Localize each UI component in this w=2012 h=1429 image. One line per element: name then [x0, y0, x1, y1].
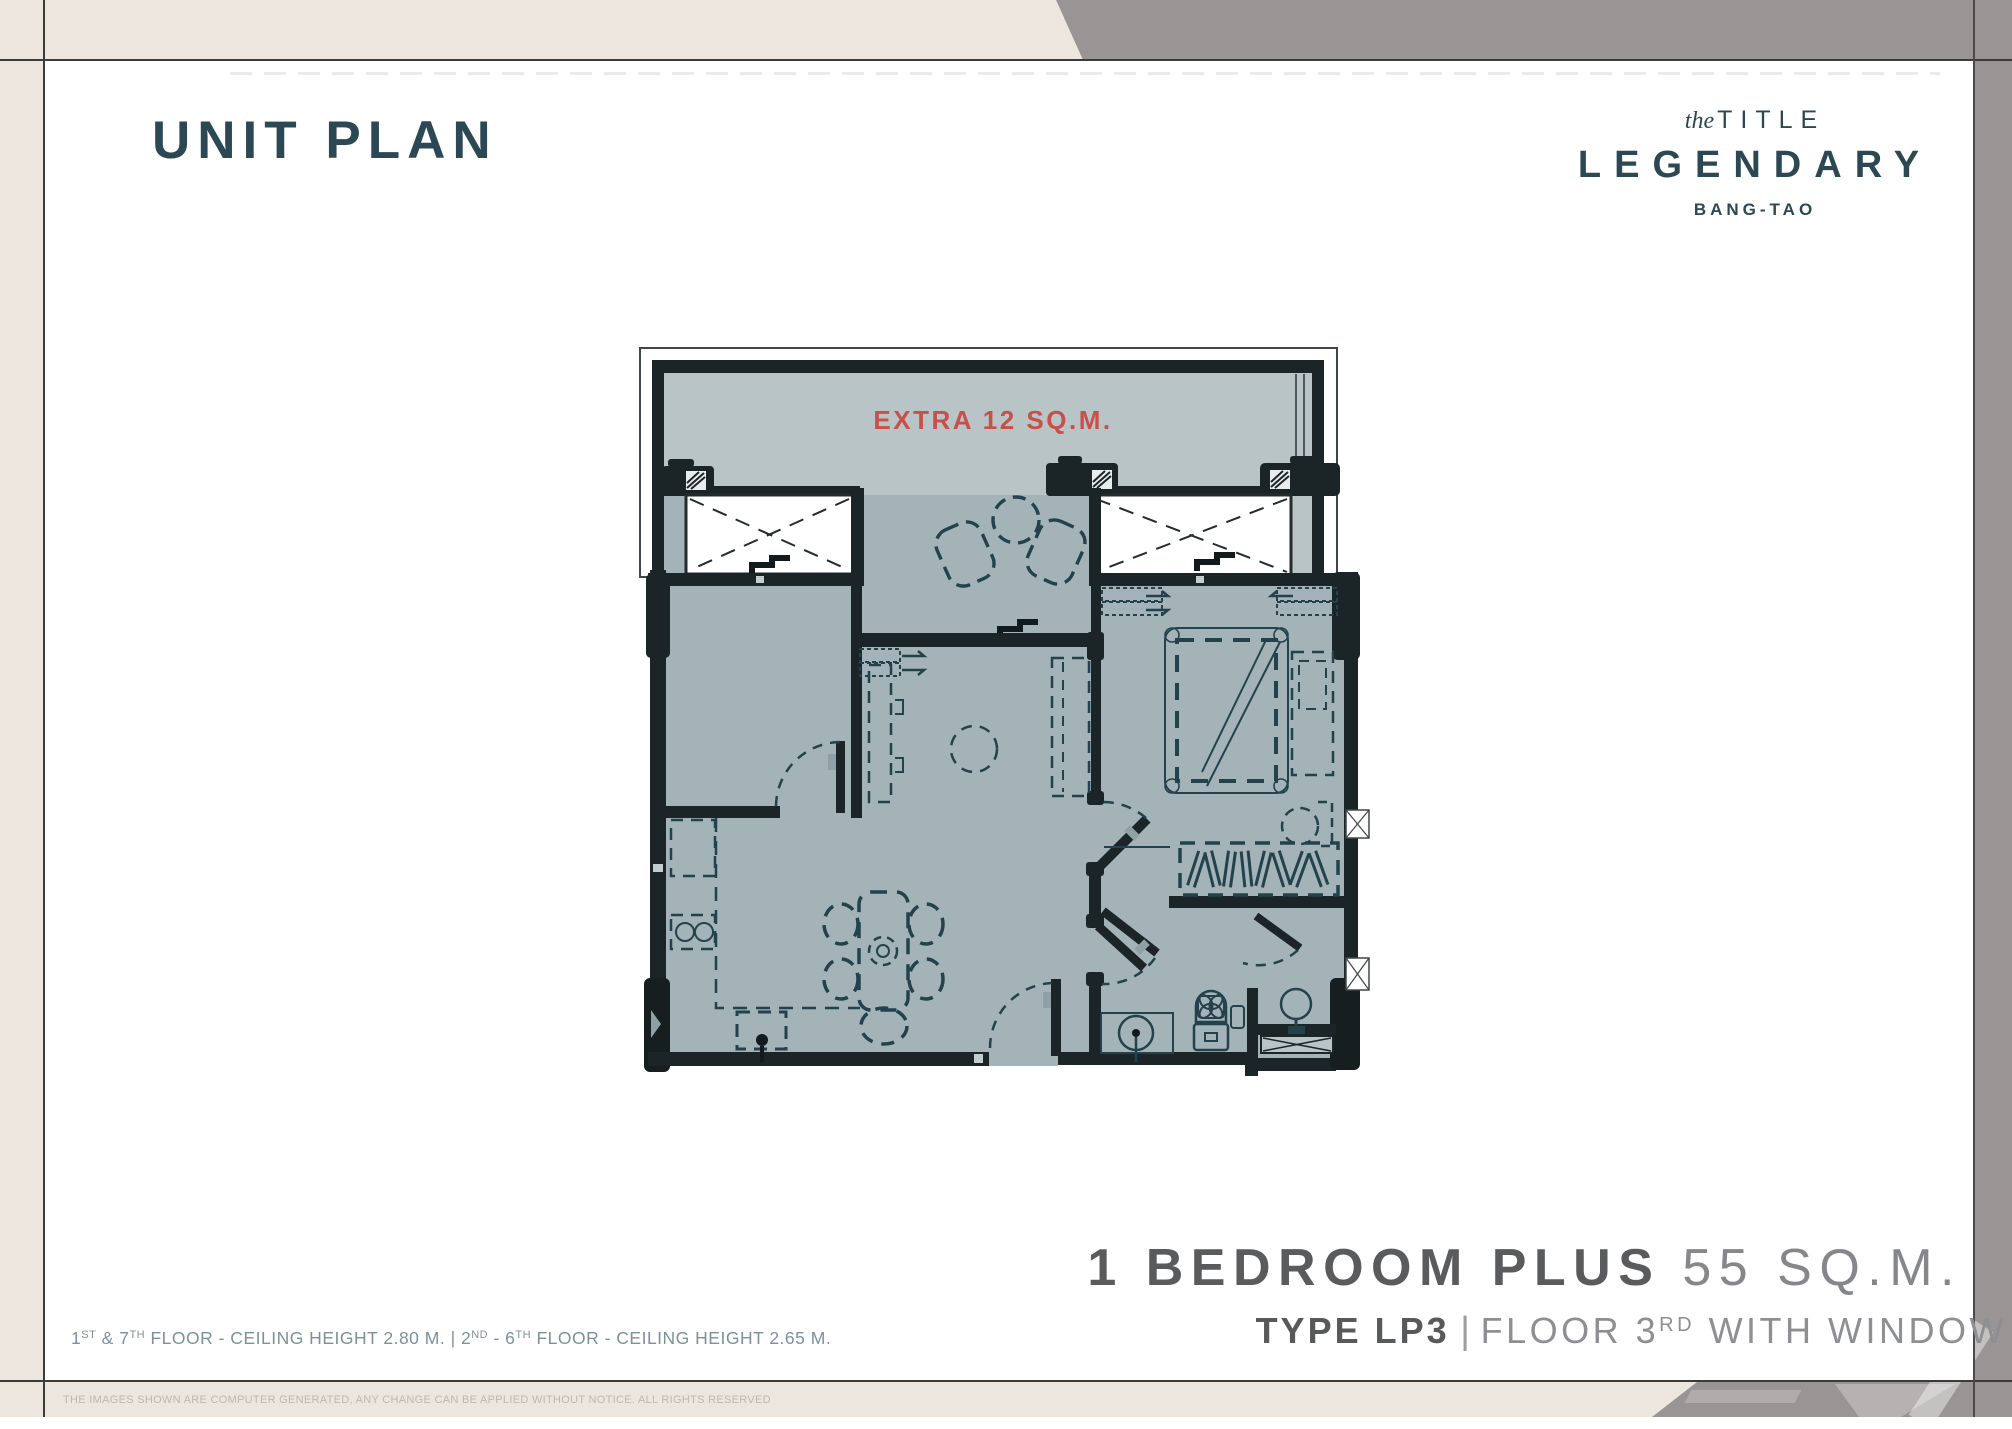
svg-text:EXTRA 12 SQ.M.: EXTRA 12 SQ.M.	[873, 405, 1112, 435]
